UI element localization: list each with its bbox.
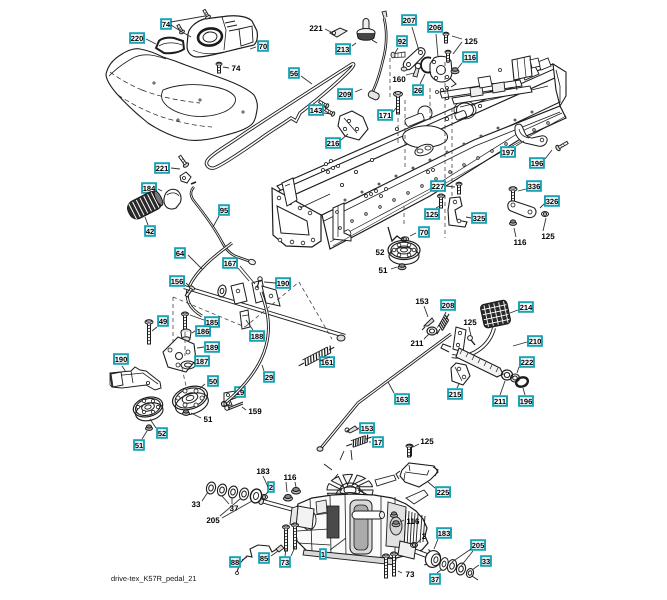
svg-text:29: 29: [265, 373, 273, 382]
svg-text:85: 85: [260, 554, 268, 563]
svg-text:167: 167: [224, 259, 237, 268]
svg-text:189: 189: [206, 343, 219, 352]
svg-text:26: 26: [414, 86, 422, 95]
svg-text:2: 2: [269, 483, 273, 492]
svg-text:88: 88: [231, 558, 239, 567]
svg-text:73: 73: [281, 558, 289, 567]
svg-text:205: 205: [206, 516, 220, 525]
svg-text:183: 183: [256, 467, 270, 476]
svg-text:196: 196: [520, 397, 533, 406]
svg-text:156: 156: [171, 277, 184, 286]
svg-text:125: 125: [464, 37, 478, 46]
svg-text:70: 70: [259, 42, 267, 51]
svg-text:51: 51: [204, 415, 213, 424]
svg-text:186: 186: [197, 327, 210, 336]
svg-text:153: 153: [361, 424, 374, 433]
svg-text:220: 220: [131, 34, 144, 43]
svg-text:116: 116: [407, 517, 420, 526]
svg-text:225: 225: [437, 488, 450, 497]
svg-text:160: 160: [392, 75, 406, 84]
svg-text:49: 49: [159, 317, 167, 326]
svg-text:222: 222: [521, 358, 534, 367]
svg-text:37: 37: [431, 575, 439, 584]
svg-text:125: 125: [420, 437, 434, 446]
svg-text:227: 227: [432, 182, 445, 191]
svg-text:51: 51: [135, 441, 143, 450]
svg-text:171: 171: [379, 111, 392, 120]
svg-text:159: 159: [248, 407, 262, 416]
svg-text:drive-tex_K57R_pedal_21: drive-tex_K57R_pedal_21: [111, 574, 196, 583]
svg-text:153: 153: [415, 297, 429, 306]
svg-text:17: 17: [374, 438, 382, 447]
svg-text:190: 190: [277, 279, 290, 288]
svg-text:163: 163: [396, 395, 409, 404]
svg-text:210: 210: [529, 337, 542, 346]
svg-text:211: 211: [411, 339, 424, 348]
svg-text:215: 215: [449, 390, 462, 399]
svg-text:161: 161: [321, 358, 334, 367]
svg-text:2: 2: [422, 532, 427, 541]
svg-text:211: 211: [494, 397, 506, 406]
svg-text:116: 116: [514, 238, 527, 247]
svg-text:208: 208: [442, 301, 455, 310]
svg-text:51: 51: [379, 266, 388, 275]
svg-text:125: 125: [463, 318, 477, 327]
svg-text:52: 52: [158, 429, 166, 438]
svg-text:183: 183: [438, 529, 451, 538]
svg-text:73: 73: [406, 570, 415, 579]
svg-text:216: 216: [327, 139, 340, 148]
svg-text:116: 116: [284, 473, 297, 482]
svg-text:33: 33: [192, 500, 201, 509]
svg-text:326: 326: [546, 197, 559, 206]
svg-text:336: 336: [528, 182, 541, 191]
svg-text:33: 33: [482, 557, 490, 566]
svg-text:190: 190: [115, 355, 128, 364]
svg-text:187: 187: [196, 357, 209, 366]
svg-text:50: 50: [209, 377, 217, 386]
svg-text:188: 188: [251, 332, 264, 341]
svg-text:197: 197: [502, 148, 515, 157]
svg-text:92: 92: [398, 37, 406, 46]
svg-text:74: 74: [162, 20, 171, 29]
svg-text:213: 213: [337, 45, 350, 54]
svg-text:205: 205: [472, 541, 485, 550]
svg-text:125: 125: [541, 232, 555, 241]
svg-text:214: 214: [520, 303, 533, 312]
svg-text:207: 207: [403, 16, 416, 25]
svg-text:74: 74: [232, 64, 241, 73]
svg-text:196: 196: [531, 159, 544, 168]
svg-text:1: 1: [321, 550, 325, 559]
svg-text:116: 116: [464, 53, 476, 62]
svg-text:125: 125: [426, 210, 439, 219]
svg-text:52: 52: [376, 248, 385, 257]
svg-text:143: 143: [310, 106, 323, 115]
svg-text:56: 56: [290, 69, 298, 78]
svg-text:209: 209: [339, 90, 352, 99]
svg-text:42: 42: [146, 227, 154, 236]
svg-text:95: 95: [220, 206, 228, 215]
svg-text:70: 70: [420, 228, 428, 237]
svg-text:64: 64: [176, 249, 185, 258]
svg-text:325: 325: [473, 214, 486, 223]
svg-text:221: 221: [156, 164, 169, 173]
svg-text:221: 221: [309, 24, 323, 33]
svg-text:206: 206: [429, 23, 442, 32]
